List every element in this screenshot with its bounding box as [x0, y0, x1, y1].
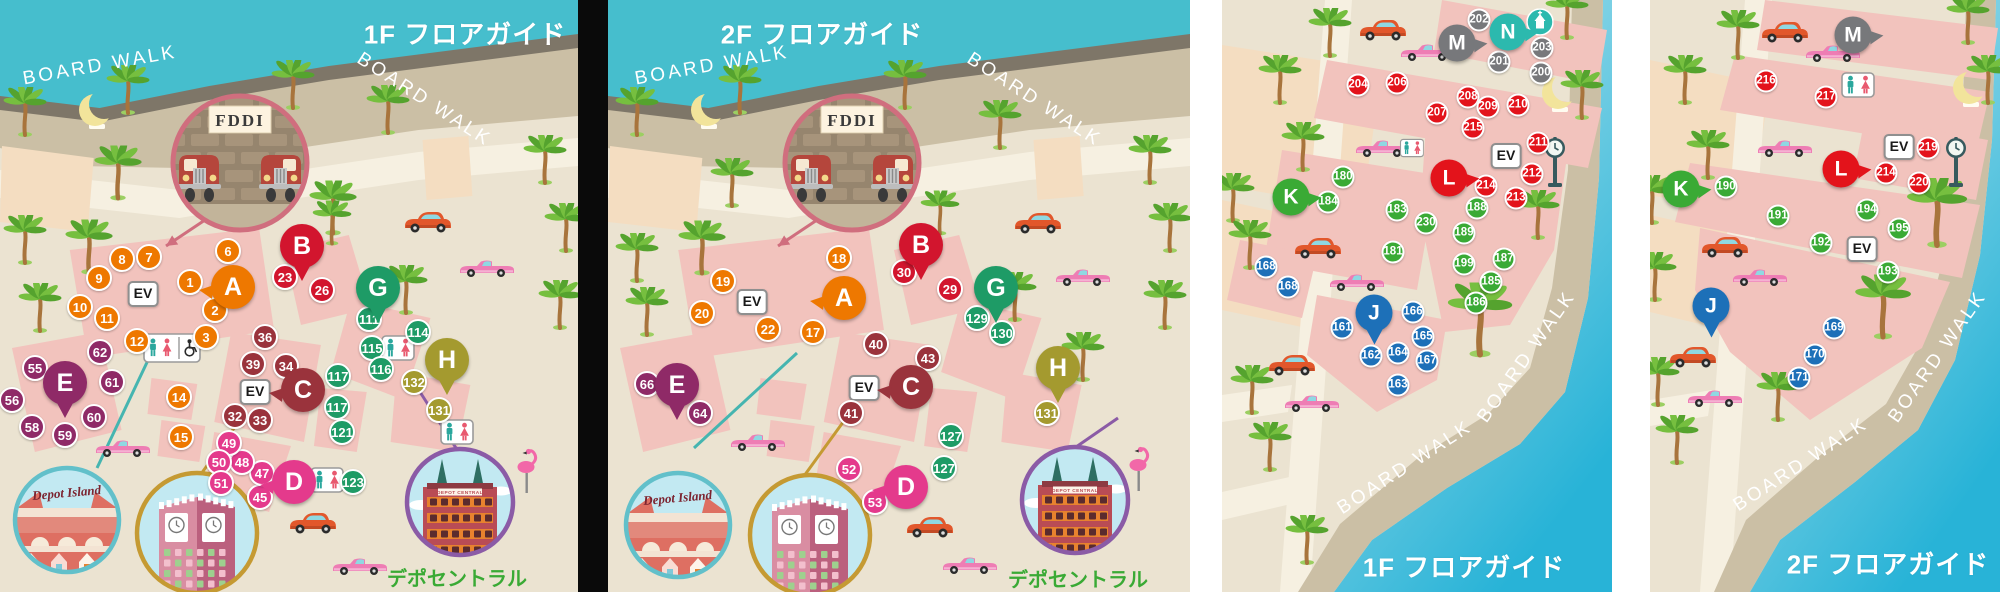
marker-8: 8 [109, 246, 135, 272]
palm-tree-icon [615, 233, 659, 283]
floor-guide-map: FDDI Depot Island DEPOT CENTRAL [0, 0, 2000, 592]
marker-194: 194 [1856, 199, 1879, 222]
pin-M: M [1439, 25, 1476, 62]
marker-166: 166 [1402, 301, 1425, 324]
marker-163: 163 [1387, 374, 1410, 397]
marker-191: 191 [1767, 205, 1790, 228]
elevator-sign: EV [1491, 143, 1522, 169]
moon-icon [1951, 69, 1991, 111]
marker-216: 216 [1755, 70, 1778, 93]
marker-214: 214 [1875, 162, 1898, 185]
panel-title: 2F フロアガイド [1787, 545, 1990, 582]
marker-61: 61 [99, 369, 125, 395]
marker-117: 117 [325, 363, 351, 389]
svg-text:FDDI: FDDI [827, 111, 877, 130]
palm-tree-icon [18, 283, 62, 333]
marker-15: 15 [168, 424, 194, 450]
marker-3: 3 [193, 324, 219, 350]
palm-tree-icon [1663, 55, 1707, 105]
marker-215: 215 [1462, 117, 1485, 140]
pin-A: A [211, 265, 255, 309]
marker-36: 36 [252, 324, 278, 350]
central-inset: DEPOT CENTRAL [401, 443, 519, 561]
palm-tree-icon [1281, 122, 1325, 172]
pin-letter: J [1368, 303, 1380, 324]
pin-J: J [1693, 288, 1730, 325]
marker-29: 29 [937, 276, 963, 302]
panel-title: 2F フロアガイド [721, 15, 924, 52]
car-icon [459, 257, 515, 279]
caption-depo-central: デポセントラル [1008, 564, 1148, 592]
palm-tree-icon [94, 146, 142, 201]
palm-tree-icon [710, 158, 754, 208]
marker-40: 40 [863, 331, 889, 357]
palm-tree-icon [1248, 422, 1292, 472]
marker-60: 60 [81, 404, 107, 430]
marker-168: 168 [1255, 256, 1278, 279]
pin-letter: G [986, 276, 1005, 301]
marker-209: 209 [1477, 96, 1500, 119]
pin-N: N [1490, 14, 1527, 51]
pin-letter: C [902, 375, 920, 400]
car-icon [1055, 266, 1111, 288]
palm-tree-icon [1686, 130, 1730, 180]
pin-A: A [822, 276, 866, 320]
marker-17: 17 [800, 319, 826, 345]
panel-title: 1F フロアガイド [364, 15, 567, 52]
palm-tree-icon [1308, 8, 1352, 58]
marker-58: 58 [19, 414, 45, 440]
marker-168: 168 [1277, 276, 1300, 299]
tower-inset [744, 469, 876, 592]
pin-letter: A [835, 286, 853, 311]
marker-6: 6 [215, 238, 241, 264]
car-icon [402, 209, 454, 235]
marker-212: 212 [1521, 163, 1544, 186]
elevator-sign: EV [849, 375, 880, 401]
marker-219: 219 [1917, 137, 1940, 160]
panel-main-1f: FDDI Depot Island DEPOT CENTRAL [0, 0, 578, 592]
svg-text:DEPOT CENTRAL: DEPOT CENTRAL [437, 490, 483, 496]
car-icon [1759, 19, 1811, 45]
palm-tree-icon [1258, 55, 1302, 105]
car-icon [730, 431, 786, 453]
marker-114: 114 [405, 319, 431, 345]
pin-H: H [425, 338, 469, 382]
marker-39: 39 [240, 351, 266, 377]
marker-210: 210 [1507, 94, 1530, 117]
pin-letter: L [1443, 168, 1456, 189]
caption-depo-central: デポセントラル [387, 563, 527, 592]
marker-11: 11 [94, 305, 120, 331]
marker-132: 132 [401, 369, 427, 395]
car-icon [942, 554, 998, 576]
marker-161: 161 [1331, 317, 1354, 340]
marker-130: 130 [989, 320, 1015, 346]
car-icon [1329, 271, 1385, 293]
palm-tree-icon [1148, 203, 1190, 253]
marker-200: 200 [1530, 62, 1553, 85]
pin-B: B [899, 223, 943, 267]
car-icon [287, 510, 339, 536]
marker-162: 162 [1360, 345, 1383, 368]
pin-D: D [884, 465, 928, 509]
moon-icon [77, 91, 117, 133]
marker-204: 204 [1347, 74, 1370, 97]
car-icon [1732, 266, 1788, 288]
pin-letter: B [293, 234, 311, 259]
car-icon [904, 514, 956, 540]
marker-22: 22 [755, 316, 781, 342]
car-icon [1699, 234, 1751, 260]
pin-D: D [272, 460, 316, 504]
car-icon [1757, 137, 1813, 159]
car-icon [1667, 344, 1719, 370]
panel-title: 1F フロアガイド [1363, 548, 1566, 585]
marker-199: 199 [1453, 253, 1476, 276]
street-clock-icon [1943, 137, 1969, 189]
pin-letter: D [897, 475, 915, 500]
marker-56: 56 [0, 387, 25, 413]
marker-64: 64 [687, 400, 713, 426]
marker-230: 230 [1415, 212, 1438, 235]
pin-letter: A [224, 275, 242, 300]
pin-letter: G [368, 276, 387, 301]
palm-tree-icon [678, 221, 726, 276]
marker-26: 26 [309, 277, 335, 303]
restroom-sign [1400, 139, 1424, 158]
panel-side-1f: EV 2002012022032042062072082092102112122… [1222, 0, 1612, 592]
marker-206: 206 [1386, 72, 1409, 95]
marker-217: 217 [1815, 86, 1838, 109]
marker-52: 52 [836, 456, 862, 482]
panel-divider [578, 0, 608, 592]
marker-167: 167 [1416, 350, 1439, 373]
pin-letter: H [1049, 356, 1067, 381]
palm-tree-icon [1222, 173, 1255, 223]
restroom-sign [1841, 72, 1875, 98]
svg-text:FDDI: FDDI [215, 111, 265, 130]
marker-187: 187 [1493, 248, 1516, 271]
pin-letter: L [1835, 159, 1848, 180]
pin-L: L [1823, 151, 1860, 188]
pin-letter: K [1673, 179, 1688, 200]
marker-121: 121 [329, 419, 355, 445]
palm-tree-icon [1946, 0, 1990, 45]
pin-letter: H [438, 348, 456, 373]
marker-188: 188 [1466, 197, 1489, 220]
pin-letter: M [1448, 33, 1466, 54]
car-icon [332, 555, 388, 577]
svg-text:DEPOT CENTRAL: DEPOT CENTRAL [1052, 488, 1098, 494]
panel-side-2f: EVEV216217219214220190191192193194195169… [1650, 0, 2000, 592]
marker-9: 9 [86, 265, 112, 291]
panel-main-2f: FDDI Depot Island DEPOT CENTRAL [608, 0, 1190, 592]
marker-41: 41 [838, 400, 864, 426]
palm-tree-icon [1854, 275, 1911, 340]
marker-220: 220 [1908, 172, 1931, 195]
palm-tree-icon [3, 215, 47, 265]
marker-171: 171 [1788, 367, 1811, 390]
marker-51: 51 [208, 470, 234, 496]
elevator-sign: EV [240, 379, 271, 405]
palm-tree-icon [1128, 135, 1172, 185]
marker-117: 117 [324, 394, 350, 420]
pin-J: J [1356, 295, 1393, 332]
marker-195: 195 [1888, 218, 1911, 241]
marker-59: 59 [52, 422, 78, 448]
marker-14: 14 [166, 384, 192, 410]
marker-192: 192 [1810, 232, 1833, 255]
marker-193: 193 [1877, 261, 1900, 284]
elevator-sign: EV [128, 281, 159, 307]
island-inset: Depot Island [620, 467, 736, 583]
palm-tree-icon [1716, 10, 1760, 60]
car-icon [1284, 392, 1340, 414]
pin-letter: C [294, 378, 312, 403]
palm-tree-icon [1650, 252, 1677, 302]
pin-letter: B [912, 233, 930, 258]
marker-129: 129 [964, 305, 990, 331]
pin-C: C [889, 365, 933, 409]
marker-123: 123 [340, 469, 366, 495]
car-icon [1012, 210, 1064, 236]
pin-letter: D [285, 470, 303, 495]
restroom-sign [440, 419, 474, 445]
pin-B: B [280, 224, 324, 268]
marker-131: 131 [1034, 400, 1060, 426]
pin-E: E [655, 363, 699, 407]
marker-20: 20 [689, 300, 715, 326]
palm-tree-icon [3, 87, 47, 137]
marker-10: 10 [67, 294, 93, 320]
car-icon [1687, 387, 1743, 409]
marker-207: 207 [1426, 102, 1449, 125]
palm-tree-icon [1285, 515, 1329, 565]
car-icon [95, 437, 151, 459]
pin-letter: J [1705, 296, 1717, 317]
marker-201: 201 [1488, 51, 1511, 74]
elevator-sign: EV [1847, 236, 1878, 262]
marker-202: 202 [1468, 9, 1491, 32]
marker-127: 127 [938, 423, 964, 449]
marker-186: 186 [1465, 292, 1488, 315]
pin-C: C [281, 368, 325, 412]
palm-tree-icon [538, 280, 578, 330]
marker-165: 165 [1412, 326, 1435, 349]
pin-letter: K [1283, 187, 1298, 208]
central-inset: DEPOT CENTRAL [1016, 441, 1134, 559]
marker-127: 127 [931, 455, 957, 481]
marker-116: 116 [368, 356, 394, 382]
fddi-inset: FDDI [167, 90, 313, 236]
marker-180: 180 [1332, 166, 1355, 189]
elevator-sign: EV [1884, 134, 1915, 160]
moon-icon [689, 91, 729, 133]
palm-tree-icon [625, 287, 669, 337]
marker-12: 12 [124, 328, 150, 354]
pin-letter: E [669, 373, 686, 398]
pin-G: G [974, 266, 1018, 310]
marker-190: 190 [1715, 176, 1738, 199]
marker-131: 131 [426, 397, 452, 423]
marker-181: 181 [1382, 241, 1405, 264]
marker-33: 33 [247, 407, 273, 433]
island-inset: Depot Island [9, 462, 125, 578]
pin-K: K [1273, 179, 1310, 216]
palm-tree-icon [1143, 280, 1187, 330]
pin-letter: E [57, 371, 74, 396]
marker-7: 7 [136, 244, 162, 270]
marker-18: 18 [826, 245, 852, 271]
marker-211: 211 [1527, 132, 1550, 155]
marker-32: 32 [222, 403, 248, 429]
pin-G: G [356, 266, 400, 310]
elevator-sign: EV [737, 289, 768, 315]
pin-letter: M [1844, 25, 1862, 46]
pin-H: H [1036, 346, 1080, 390]
tower-inset [131, 467, 263, 592]
palm-tree-icon [1655, 415, 1699, 465]
pin-K: K [1663, 171, 1700, 208]
car-icon [1357, 17, 1409, 43]
marker-170: 170 [1804, 344, 1827, 367]
marker-213: 213 [1505, 187, 1528, 210]
marker-62: 62 [87, 339, 113, 365]
marker-19: 19 [710, 268, 736, 294]
pin-M: M [1835, 17, 1872, 54]
palm-tree-icon [523, 135, 567, 185]
marker-183: 183 [1386, 199, 1409, 222]
fddi-inset: FDDI [779, 90, 925, 236]
pin-letter: N [1500, 22, 1515, 43]
marker-164: 164 [1387, 342, 1410, 365]
car-icon [1266, 352, 1318, 378]
palm-tree-icon [978, 100, 1022, 150]
marker-189: 189 [1453, 222, 1476, 245]
palm-tree-icon [544, 203, 578, 253]
marker-169: 169 [1823, 317, 1846, 340]
marker-185: 185 [1480, 271, 1503, 294]
palm-tree-icon [615, 87, 659, 137]
pin-L: L [1431, 160, 1468, 197]
pin-E: E [43, 361, 87, 405]
car-icon [1292, 235, 1344, 261]
